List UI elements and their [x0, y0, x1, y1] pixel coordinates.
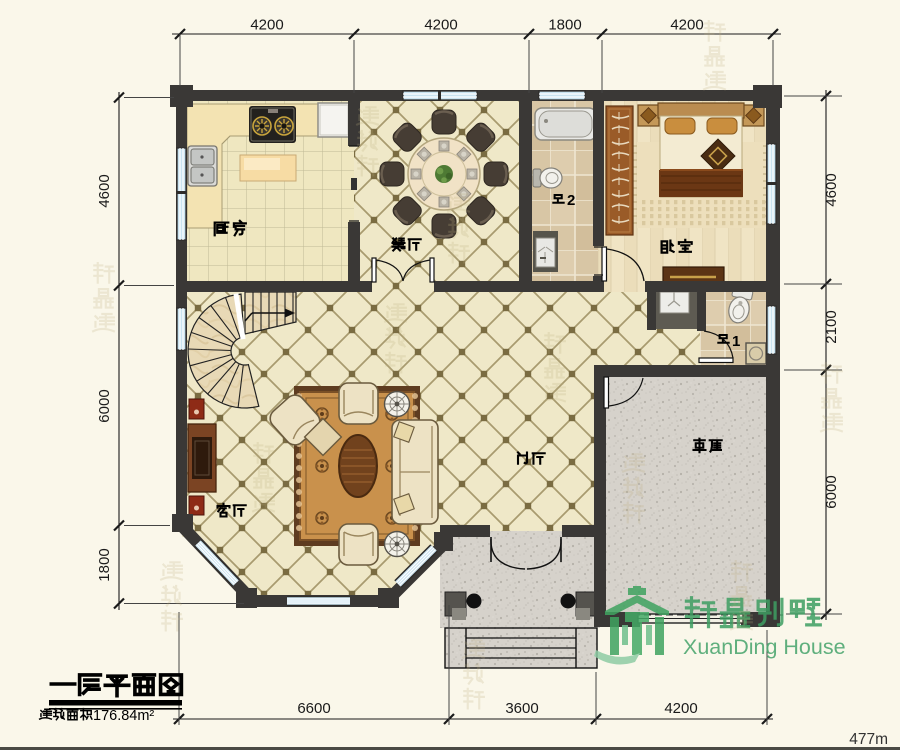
- svg-text:3600: 3600: [505, 700, 538, 717]
- svg-text:6000: 6000: [823, 475, 840, 508]
- svg-text:1800: 1800: [548, 17, 581, 34]
- svg-text:1: 1: [732, 333, 740, 350]
- svg-text:176.84m²: 176.84m²: [93, 708, 154, 724]
- svg-text:2: 2: [567, 192, 575, 209]
- svg-text:6000: 6000: [96, 389, 113, 422]
- svg-text:4200: 4200: [250, 17, 283, 34]
- svg-text:4600: 4600: [96, 174, 113, 207]
- svg-text:4600: 4600: [823, 173, 840, 206]
- svg-text:1800: 1800: [96, 548, 113, 581]
- svg-text:4200: 4200: [670, 17, 703, 34]
- svg-text:4200: 4200: [664, 700, 697, 717]
- svg-text:2100: 2100: [823, 310, 840, 343]
- svg-text:4200: 4200: [424, 17, 457, 34]
- svg-text:477m: 477m: [849, 731, 888, 748]
- svg-text:6600: 6600: [297, 700, 330, 717]
- svg-text:XuanDing House: XuanDing House: [683, 635, 846, 659]
